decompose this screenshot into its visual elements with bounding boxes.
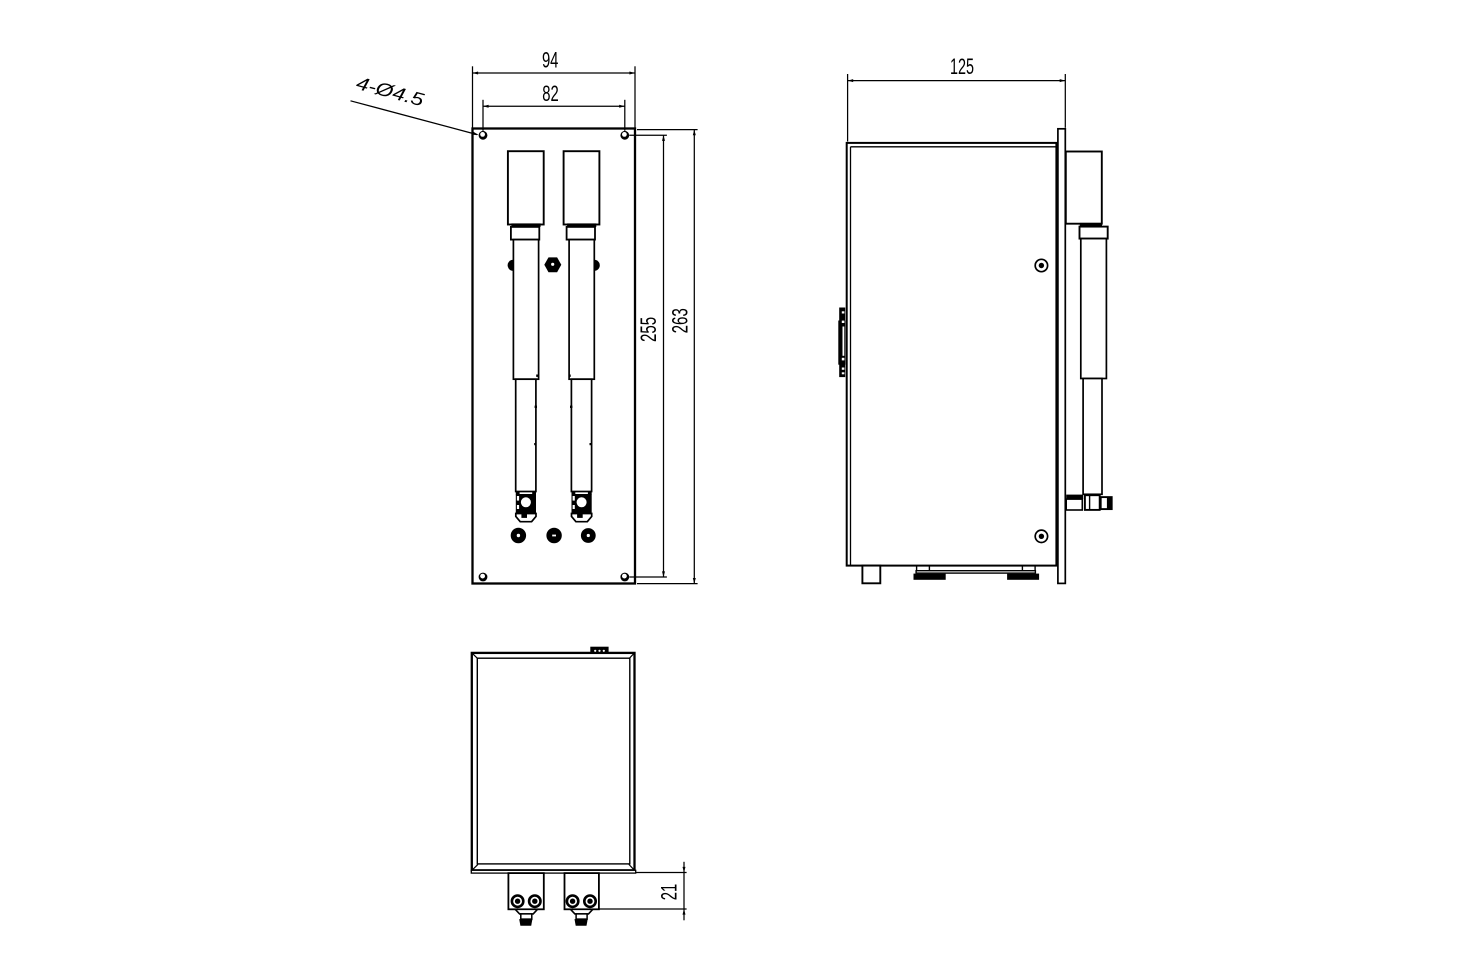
svg-text:82: 82: [542, 81, 559, 106]
svg-text:125: 125: [950, 54, 974, 79]
svg-text:263: 263: [667, 308, 692, 333]
svg-text:94: 94: [542, 48, 559, 73]
svg-text:21: 21: [657, 884, 682, 901]
svg-text:255: 255: [636, 317, 661, 342]
